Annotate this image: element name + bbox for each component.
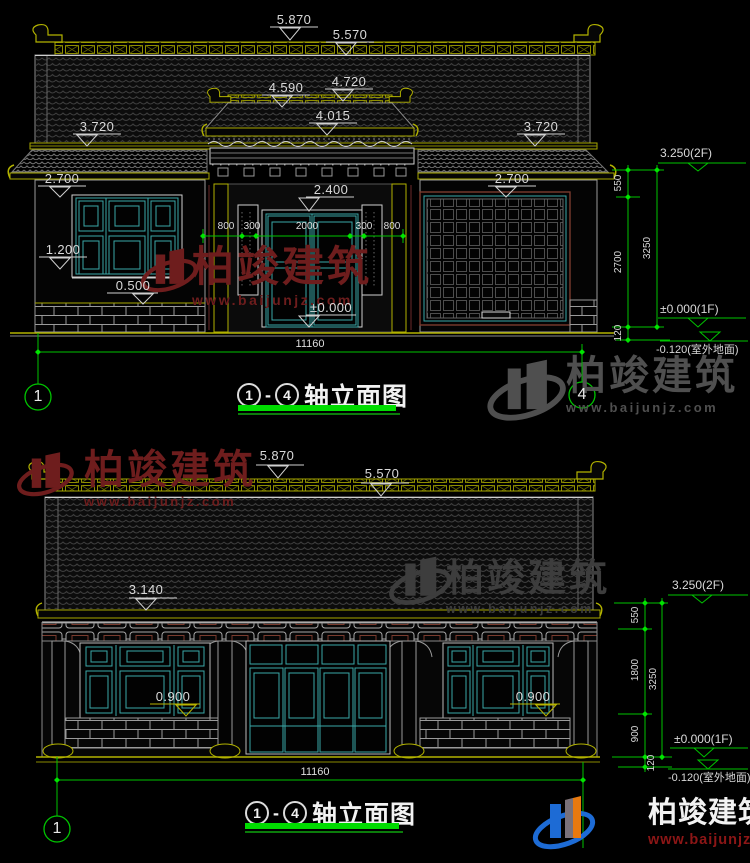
elev2-group — [29, 462, 748, 848]
elev2-ridge — [55, 479, 595, 491]
garage-handle — [482, 312, 510, 318]
elev2-center-doors — [246, 641, 390, 754]
elev2-brick-left — [65, 718, 218, 748]
elev1-entrance-door — [262, 210, 362, 327]
elev2-frieze — [42, 623, 597, 641]
elev2-eave — [38, 610, 600, 618]
ridge-ornament-right-icon — [574, 25, 603, 42]
elevation-linework — [0, 0, 750, 863]
elev2-window-left — [80, 643, 210, 718]
cad-canvas: 柏竣建筑 www.baijunjz.com 柏竣建筑 www.baijunjz.… — [0, 0, 750, 863]
brand-logo-icon — [531, 796, 597, 853]
ridge-ornament-left-icon — [33, 25, 62, 42]
elev2-brick-right — [420, 718, 570, 748]
ridge-ornament-right-icon — [577, 462, 606, 479]
elev1-ridge — [55, 42, 595, 55]
watermark-logo-icon — [485, 360, 567, 426]
elev1-garage-door — [420, 192, 570, 325]
elev1-skirt-right — [418, 150, 608, 172]
elev1-skirt-left — [12, 150, 207, 172]
watermark-logo-icon — [16, 452, 76, 500]
elev1-group — [8, 25, 748, 410]
elev1-plinth-right — [570, 300, 597, 332]
elev2-window-right — [443, 643, 553, 718]
elev1-plinth-left — [35, 303, 205, 332]
